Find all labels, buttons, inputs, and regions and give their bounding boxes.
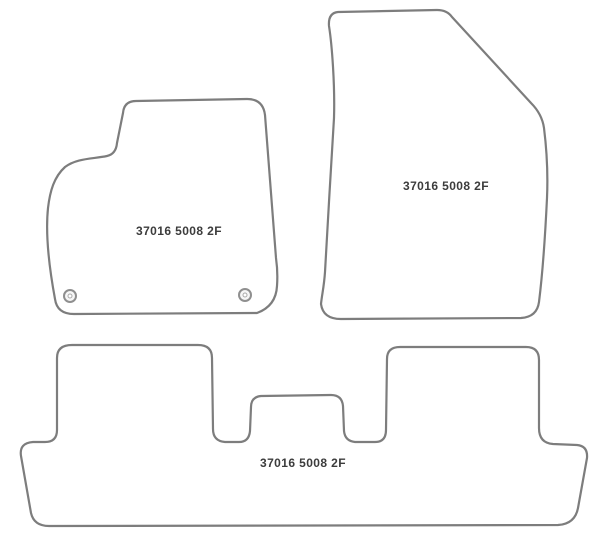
rear-bench-mat-label: 37016 5008 2F — [260, 456, 346, 470]
rear-bench-mat: 37016 5008 2F — [21, 345, 587, 526]
front-left-mat-label: 37016 5008 2F — [136, 224, 222, 238]
front-right-mat-label: 37016 5008 2F — [403, 179, 489, 193]
front-right-mat: 37016 5008 2F — [321, 10, 547, 319]
front-left-mat-outline — [47, 99, 277, 314]
mat-diagram-canvas: 37016 5008 2F 37016 5008 2F 37016 5008 2… — [0, 0, 600, 542]
fixing-clip-icon — [64, 290, 76, 302]
front-right-mat-outline — [321, 10, 547, 319]
rear-bench-mat-outline — [21, 345, 587, 526]
front-left-mat: 37016 5008 2F — [47, 99, 277, 314]
fixing-clip-icon — [239, 289, 251, 301]
car-mat-set-diagram: 37016 5008 2F 37016 5008 2F 37016 5008 2… — [0, 0, 600, 542]
